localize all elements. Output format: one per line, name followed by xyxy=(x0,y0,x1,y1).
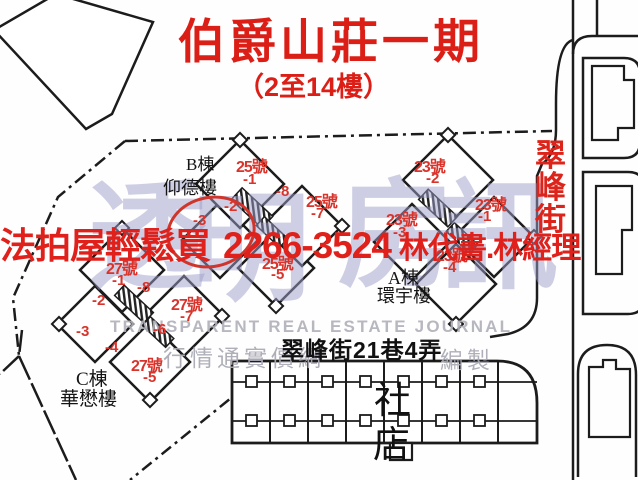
ad-banner-phone: 2266-3524 xyxy=(223,225,391,266)
ad-banner-agents: 林代書.林經理 xyxy=(399,232,580,265)
unit-label: -7 xyxy=(180,308,193,325)
unit-label: -6 xyxy=(153,321,166,338)
lane-name: 翠峰街21巷4弄 xyxy=(281,331,442,365)
building-a-name: 環宇樓 xyxy=(377,282,431,308)
map-subtitle: （2至14樓） xyxy=(237,74,390,101)
unit-label: -8 xyxy=(137,279,150,296)
northwest-lot xyxy=(0,0,153,129)
unit-label: -1 xyxy=(243,171,256,188)
building-c-name: 華懋樓 xyxy=(60,384,117,411)
property-map: 透 明 房 訊 TRANSPARENT REAL ESTATE JOURNAL … xyxy=(0,0,638,480)
unit-label: -8 xyxy=(276,183,289,200)
community-hall-char1: 社 xyxy=(374,383,411,420)
ad-banner-slogan: 法拍屋輕鬆買 xyxy=(0,225,210,266)
unit-label: -3 xyxy=(76,323,89,340)
community-hall-char2: 店 xyxy=(373,427,410,464)
unit-label: -2 xyxy=(92,292,105,309)
map-title: 伯爵山莊一期 xyxy=(178,18,484,65)
unit-label: -4 xyxy=(105,339,118,356)
ad-banner: 法拍屋輕鬆買2266-3524林代書.林經理 xyxy=(0,217,638,269)
building-b-label: B棟 xyxy=(186,150,214,175)
unit-label: -1 xyxy=(112,272,125,289)
unit-label: -5 xyxy=(143,369,156,386)
watermark-cjk-suffix: 編製 xyxy=(440,341,494,375)
unit-label: -2 xyxy=(224,198,237,215)
unit-label: -2 xyxy=(426,170,439,187)
